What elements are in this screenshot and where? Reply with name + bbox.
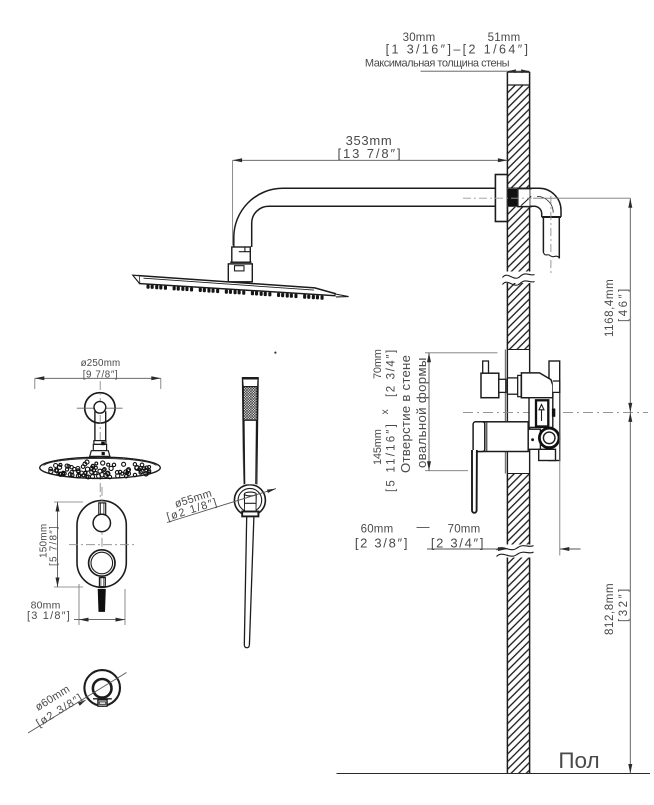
svg-text:1168,4mm: 1168,4mm (604, 279, 616, 337)
svg-text:[46″]: [46″] (618, 286, 630, 322)
svg-text:Пол: Пол (558, 748, 599, 773)
svg-text:x: x (379, 409, 391, 415)
svg-text:[9 7/8″]: [9 7/8″] (83, 370, 119, 381)
svg-text:812,8mm: 812,8mm (604, 583, 616, 635)
svg-text:[3 1/8″]: [3 1/8″] (27, 610, 71, 622)
svg-text:овальной формы: овальной формы (414, 357, 429, 468)
svg-text:—: — (417, 519, 430, 534)
svg-text:ø250mm: ø250mm (81, 358, 121, 369)
svg-text:Отверстие в стене: Отверстие в стене (398, 355, 413, 473)
svg-text:[13 7/8″]: [13 7/8″] (337, 146, 402, 161)
svg-text:Максимальная толщина стены: Максимальная толщина стены (365, 58, 510, 70)
svg-text:[2 3/8″]: [2 3/8″] (355, 536, 409, 551)
svg-text:[2 3/4″]: [2 3/4″] (386, 348, 398, 397)
svg-text:145mm: 145mm (372, 429, 384, 465)
svg-text:[5 7/8″]: [5 7/8″] (49, 525, 60, 566)
svg-text:70mm: 70mm (372, 349, 384, 379)
svg-text:70mm: 70mm (448, 524, 481, 536)
svg-text:[32″]: [32″] (618, 586, 630, 622)
svg-text:60mm: 60mm (361, 524, 394, 536)
svg-text:[2 3/4″]: [2 3/4″] (431, 536, 485, 551)
svg-text:[5 11/16″]: [5 11/16″] (386, 422, 398, 492)
svg-text:[1 3/16″]–[2 1/64″]: [1 3/16″]–[2 1/64″] (386, 43, 531, 57)
